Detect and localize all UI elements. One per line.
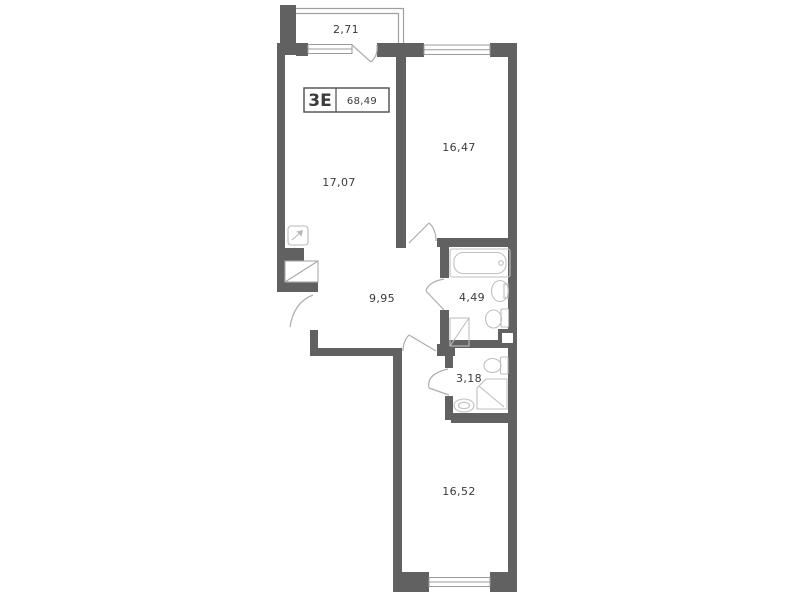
door-bedroom-top <box>409 223 436 243</box>
wall-right-exterior <box>508 43 517 592</box>
door-entrance <box>290 295 313 327</box>
living-room-area-label: 17,07 <box>322 176 356 189</box>
toilet-icon <box>484 357 508 374</box>
door-bottomwing <box>403 335 436 351</box>
door-wc <box>429 369 449 395</box>
door-bathroom <box>426 279 444 310</box>
bathroom-area-label: 4,49 <box>459 291 485 304</box>
bathtub-icon <box>450 249 510 277</box>
bedroom-top-area-label: 16,47 <box>442 141 476 154</box>
wall-bedroomtop-bottom <box>437 238 517 247</box>
door-balcony <box>352 45 377 62</box>
wall-room-divider <box>396 57 406 248</box>
wc-area-label: 3,18 <box>456 372 482 385</box>
wall-balcony-left-foot <box>296 43 308 56</box>
floor-plan-drawing: 3Е 68,49 2,71 17,07 16,47 9,95 4,49 3,18… <box>0 0 799 600</box>
wall-bathroom-left-upper <box>440 247 449 278</box>
apartment-type-label: 3Е <box>308 91 331 111</box>
wall-bottom-corner-left <box>393 572 429 592</box>
duct-shaft-opening <box>502 333 513 343</box>
wall-bottomwing-left <box>393 348 402 580</box>
title-box: 3Е 68,49 <box>304 88 389 112</box>
toilet-icon <box>486 309 509 328</box>
wall-entry-top <box>277 282 318 292</box>
balcony-area-label: 2,71 <box>333 23 359 36</box>
wall-top-right-block <box>490 43 517 57</box>
sink-icon <box>492 281 509 302</box>
total-area-label: 68,49 <box>347 96 377 107</box>
window-living <box>308 45 352 54</box>
wall-top-mid-block <box>377 43 424 57</box>
wardrobe-niche-icon <box>285 261 318 282</box>
sink-icon <box>454 399 474 412</box>
hallway-area-label: 9,95 <box>369 292 395 305</box>
wall-entry-stub-top <box>285 248 304 261</box>
wall-hall-bottom <box>310 348 395 356</box>
bedroom-bottom-area-label: 16,52 <box>442 485 476 498</box>
vent-shaft-icon <box>288 226 308 245</box>
wall-wc-left-upper <box>445 356 453 368</box>
wall-wc-bottom <box>451 413 517 423</box>
wall-left-exterior <box>277 43 285 292</box>
floor-plan-page: 3Е 68,49 2,71 17,07 16,47 9,95 4,49 3,18… <box>0 0 799 600</box>
window-bedroom-top <box>424 45 490 55</box>
window-bedroom-bottom <box>429 578 490 587</box>
